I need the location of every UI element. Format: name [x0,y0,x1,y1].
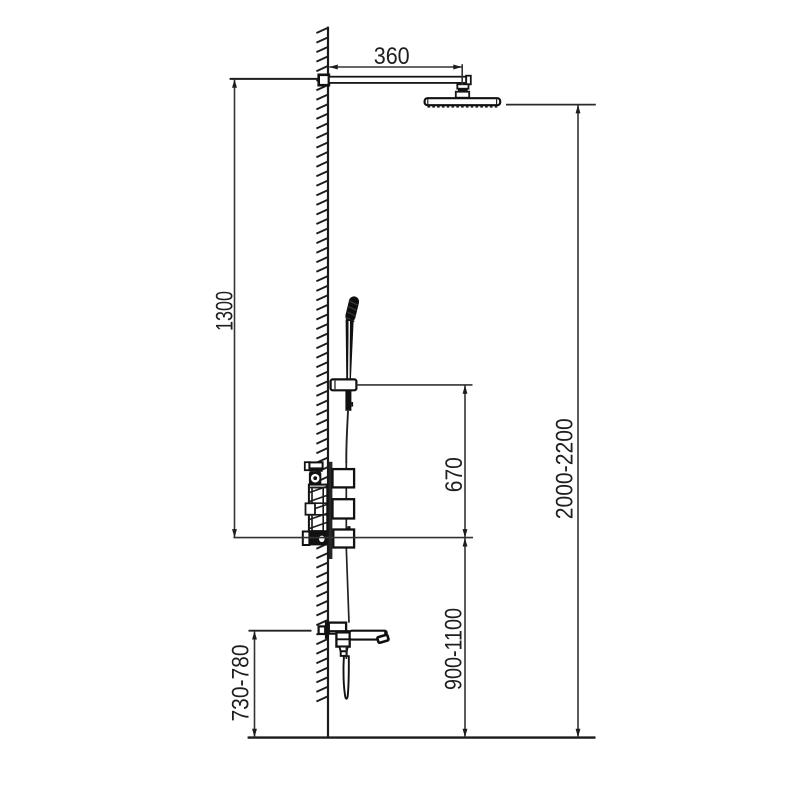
svg-text:360: 360 [374,43,410,70]
svg-text:1300: 1300 [212,291,239,331]
svg-text:730-780: 730-780 [227,645,254,722]
svg-text:670: 670 [441,457,468,492]
svg-text:2000-2200: 2000-2200 [552,418,579,519]
svg-text:900-1100: 900-1100 [441,608,468,690]
